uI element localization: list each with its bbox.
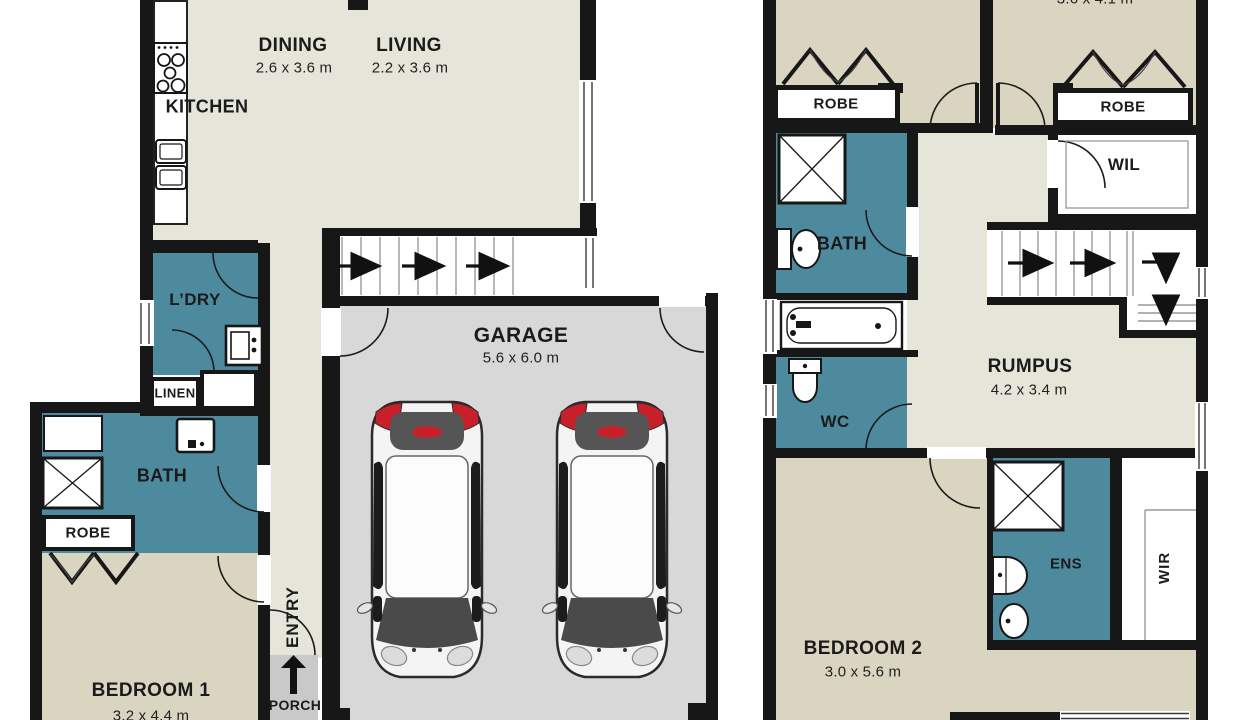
room-label-linen: LINEN bbox=[155, 386, 196, 401]
window bbox=[579, 80, 597, 203]
room-label-robe-left: ROBE bbox=[814, 96, 859, 113]
ensuite-floor bbox=[993, 458, 1110, 640]
window bbox=[762, 384, 777, 418]
wall bbox=[688, 703, 718, 720]
room-dim-garage: 5.6 x 6.0 m bbox=[483, 350, 559, 367]
wall bbox=[140, 0, 153, 413]
laundry-floor bbox=[153, 253, 258, 375]
room-dim-rumpus: 4.2 x 3.4 m bbox=[991, 382, 1067, 399]
wall bbox=[30, 402, 140, 413]
room-dim-bedroom1: 3.2 x 4.4 m bbox=[113, 708, 189, 720]
door-opening bbox=[906, 207, 919, 257]
wall bbox=[1127, 330, 1208, 338]
room-dim-dining: 2.6 x 3.6 m bbox=[256, 60, 332, 77]
door-opening bbox=[257, 465, 271, 512]
door-opening bbox=[927, 447, 986, 459]
room-label-bedroom1: BEDROOM 1 bbox=[92, 680, 211, 702]
wall bbox=[987, 458, 993, 640]
door-opening bbox=[257, 555, 271, 605]
garage-floor bbox=[340, 305, 706, 720]
window bbox=[1195, 402, 1209, 471]
wil-room bbox=[1058, 135, 1196, 215]
room-label-rumpus: RUMPUS bbox=[988, 356, 1073, 378]
wall bbox=[763, 350, 918, 357]
wall bbox=[142, 240, 258, 253]
room-label-laundry: L’DRY bbox=[169, 290, 220, 310]
floor-plan: DINING 2.6 x 3.6 m LIVING 2.2 x 3.6 m KI… bbox=[0, 0, 1240, 720]
room-label-bath2: BATH bbox=[817, 234, 867, 255]
wall bbox=[900, 123, 993, 133]
wall bbox=[1196, 0, 1208, 720]
door-opening bbox=[659, 295, 705, 307]
window bbox=[138, 300, 154, 346]
wall bbox=[995, 125, 1043, 135]
wall bbox=[330, 708, 350, 720]
room-label-entry: ENTRY bbox=[283, 548, 303, 648]
window bbox=[581, 236, 599, 290]
wall bbox=[348, 0, 368, 10]
room-label-robe1: ROBE bbox=[66, 525, 111, 542]
door-opening bbox=[321, 308, 341, 356]
room-label-wil: WIL bbox=[1108, 155, 1140, 175]
wall bbox=[325, 228, 597, 236]
wall bbox=[30, 402, 42, 720]
room-label-bedroom2: BEDROOM 2 bbox=[804, 638, 923, 660]
wall bbox=[950, 712, 1060, 720]
tub-alcove bbox=[776, 300, 907, 350]
bedroom2-floor-l bbox=[987, 650, 1196, 720]
wall bbox=[763, 293, 918, 300]
room-label-ens: ENS bbox=[1050, 556, 1082, 573]
room-label-bath1: BATH bbox=[137, 466, 187, 487]
wall bbox=[987, 222, 1208, 230]
bath2-floor bbox=[776, 133, 907, 298]
wall bbox=[706, 293, 718, 720]
closet bbox=[200, 370, 258, 410]
wall bbox=[763, 123, 903, 133]
window bbox=[1195, 267, 1209, 299]
room-label-living: LIVING bbox=[376, 35, 442, 57]
wall bbox=[1119, 297, 1127, 338]
bedroom2-floor bbox=[776, 458, 987, 720]
wc-floor bbox=[776, 357, 907, 448]
room-dim-living: 2.2 x 3.6 m bbox=[372, 60, 448, 77]
window bbox=[1060, 711, 1190, 720]
room-label-dining: DINING bbox=[259, 35, 328, 57]
stairs-upper-return bbox=[1127, 297, 1196, 330]
wall bbox=[980, 0, 993, 130]
stairs-ground bbox=[332, 236, 583, 296]
room-dim-bedroom2: 3.0 x 5.6 m bbox=[825, 664, 901, 681]
room-label-porch: PORCH bbox=[269, 697, 322, 713]
stairs-upper-flight bbox=[987, 230, 1196, 297]
room-label-wir: WIR bbox=[1156, 528, 1173, 584]
room-label-wc: WC bbox=[820, 412, 849, 432]
wall bbox=[1110, 458, 1122, 640]
wall bbox=[987, 297, 1127, 305]
room-label-kitchen: KITCHEN bbox=[166, 97, 249, 118]
room-label-garage: GARAGE bbox=[474, 324, 569, 348]
wall bbox=[1043, 125, 1208, 135]
door-opening bbox=[1047, 140, 1059, 188]
window bbox=[762, 299, 777, 354]
open-living-floor bbox=[153, 0, 580, 235]
room-dim-bedroom-top-cropped: 3.6 x 4.1 m bbox=[1057, 0, 1133, 8]
room-label-robe-right: ROBE bbox=[1101, 99, 1146, 116]
vanity bbox=[43, 415, 103, 452]
wall bbox=[987, 640, 1208, 650]
